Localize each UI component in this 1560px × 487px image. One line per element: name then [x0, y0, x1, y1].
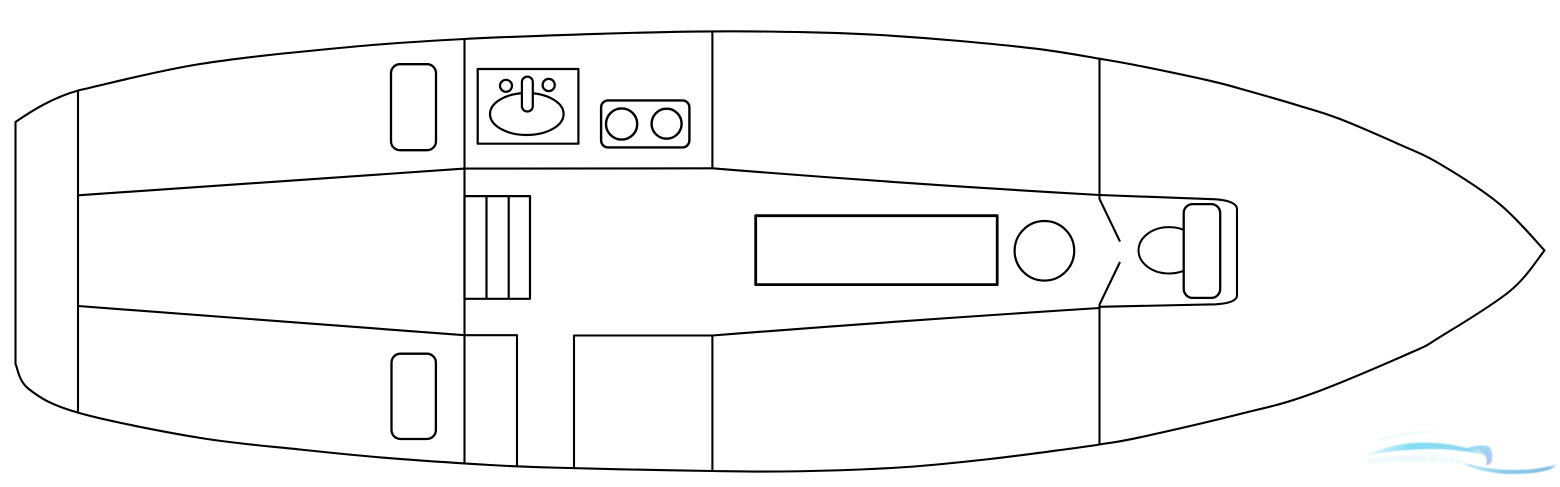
- svg-text:T.COM: T.COM: [1423, 452, 1470, 468]
